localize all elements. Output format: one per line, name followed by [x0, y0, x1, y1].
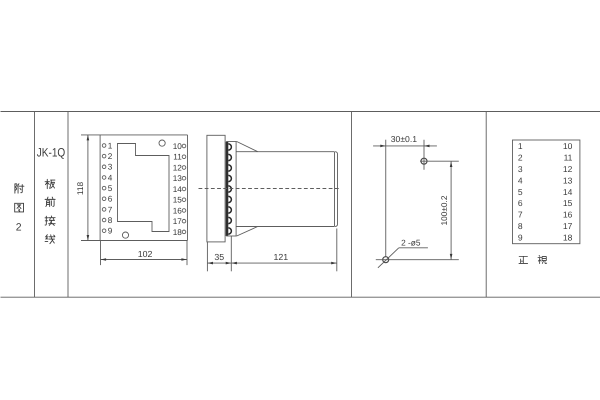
svg-text:13: 13: [173, 174, 183, 183]
svg-text:8: 8: [108, 216, 113, 225]
svg-text:2: 2: [16, 221, 22, 233]
svg-text:3: 3: [518, 164, 523, 174]
svg-text:13: 13: [563, 175, 573, 185]
svg-text:11: 11: [173, 153, 182, 162]
svg-text:5: 5: [108, 184, 113, 193]
svg-text:17: 17: [173, 217, 183, 226]
svg-text:7: 7: [518, 210, 523, 220]
svg-text:12: 12: [563, 164, 573, 174]
svg-text:11: 11: [564, 153, 573, 163]
svg-text:1: 1: [108, 141, 113, 150]
svg-text:15: 15: [563, 198, 573, 208]
svg-text:102: 102: [138, 249, 153, 259]
svg-text:4: 4: [108, 173, 113, 182]
svg-text:118: 118: [75, 182, 85, 196]
svg-text:15: 15: [173, 196, 183, 205]
svg-text:10: 10: [173, 142, 183, 151]
svg-text:14: 14: [173, 185, 183, 194]
svg-text:100±0.2: 100±0.2: [439, 195, 449, 225]
svg-text:2: 2: [518, 153, 523, 163]
svg-text:JK-1Q: JK-1Q: [37, 145, 66, 159]
svg-text:18: 18: [173, 228, 183, 237]
svg-text:6: 6: [108, 195, 113, 204]
svg-text:3: 3: [108, 163, 113, 172]
svg-text:9: 9: [108, 227, 113, 236]
svg-text:30±0.1: 30±0.1: [391, 134, 417, 144]
svg-text:18: 18: [563, 232, 573, 242]
svg-text:2: 2: [108, 152, 113, 161]
svg-text:1: 1: [518, 141, 523, 151]
svg-text:7: 7: [108, 205, 113, 214]
svg-text:10: 10: [563, 141, 573, 151]
svg-text:9: 9: [518, 232, 523, 242]
svg-text:4: 4: [518, 175, 523, 185]
svg-text:16: 16: [563, 210, 573, 220]
svg-text:8: 8: [518, 221, 523, 231]
svg-text:2 -ø5: 2 -ø5: [401, 237, 421, 247]
svg-text:17: 17: [563, 221, 573, 231]
svg-text:6: 6: [518, 198, 523, 208]
svg-text:121: 121: [273, 252, 288, 262]
svg-text:14: 14: [563, 187, 573, 197]
svg-text:12: 12: [173, 163, 183, 172]
svg-text:35: 35: [214, 252, 224, 262]
svg-text:5: 5: [518, 187, 523, 197]
svg-text:16: 16: [173, 206, 183, 215]
